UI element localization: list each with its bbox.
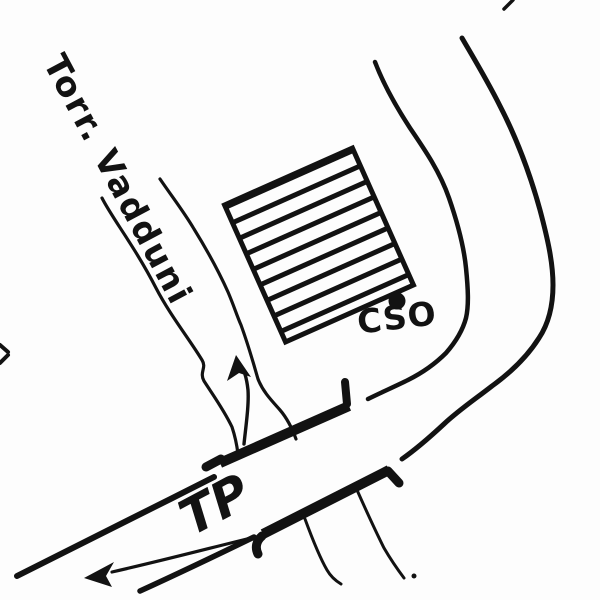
stream-right-bank-lower [357, 490, 404, 578]
road-outer-edge [402, 38, 553, 459]
left-margin-mark [0, 345, 8, 363]
hand-drawn-sketch-map: Torr. Vadduni TP CSO [0, 0, 600, 600]
stream-left-bank-lower [305, 519, 341, 584]
bridge-parapet-south [256, 470, 399, 554]
stream-flow-arrow [227, 355, 251, 444]
road-direction-arrow-head-icon [84, 562, 114, 587]
parapet-south-left-hook [256, 536, 262, 554]
top-margin-tick [504, 0, 513, 9]
parapet-south-bar [263, 470, 389, 534]
bridge-parapet-north [206, 382, 349, 467]
ink-speck [412, 574, 417, 579]
parapet-south-right-hook [388, 471, 399, 483]
stream-flow-arrow-shaft [242, 368, 248, 444]
parapet-north-right-cap [345, 382, 347, 404]
parapet-north-left-hook [206, 459, 221, 467]
road-direction-arrow-shaft [112, 538, 251, 572]
